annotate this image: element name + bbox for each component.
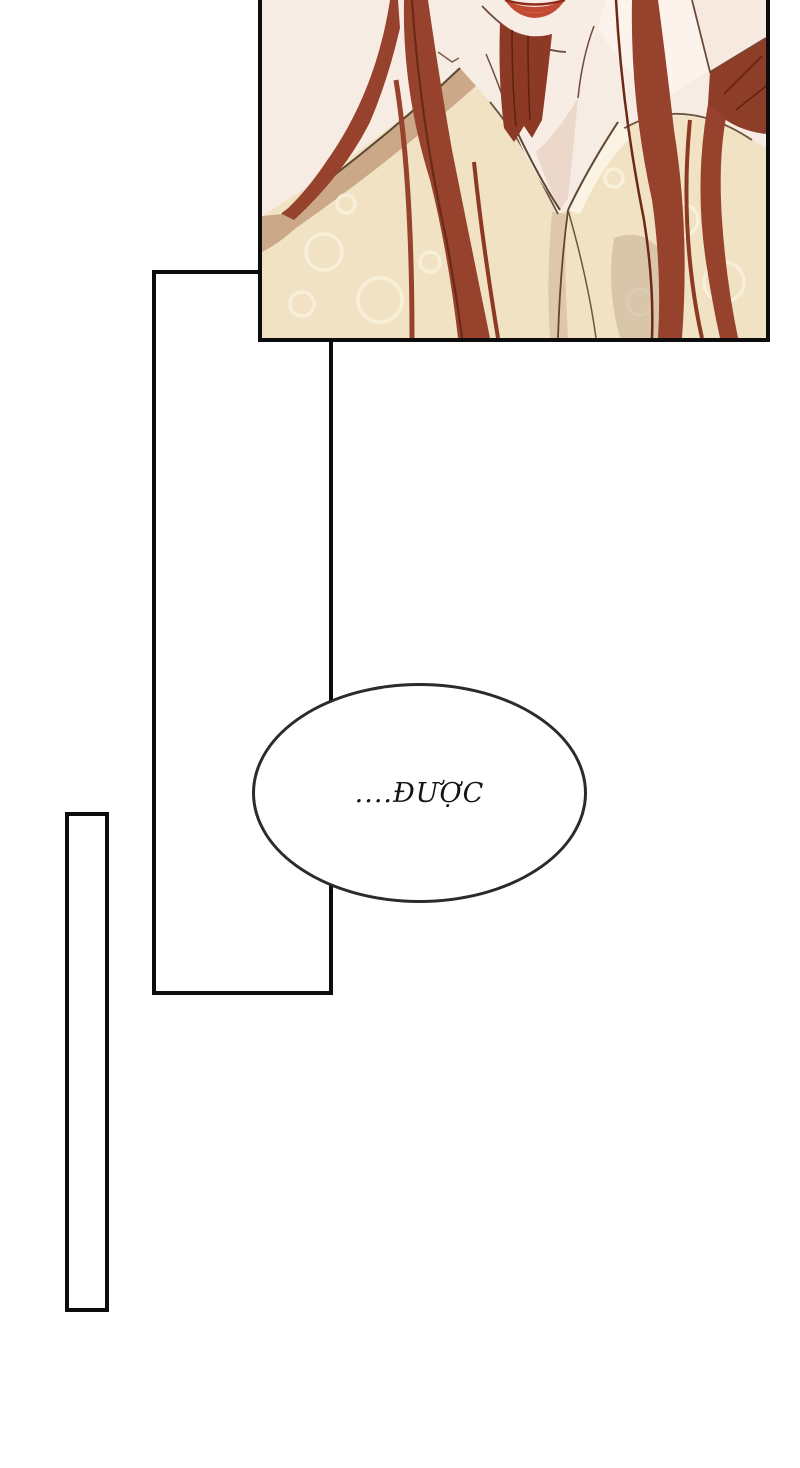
- speech-bubble: ....ĐƯỢC: [252, 683, 587, 903]
- empty-panel-frame-narrow: [65, 812, 109, 1312]
- speech-bubble-text: ....ĐƯỢC: [355, 778, 485, 809]
- empty-panel-frame-tall: [152, 270, 333, 995]
- comic-page: ....ĐƯỢC: [0, 0, 800, 1468]
- character-artwork: [262, 0, 766, 338]
- artwork-panel: [258, 0, 770, 342]
